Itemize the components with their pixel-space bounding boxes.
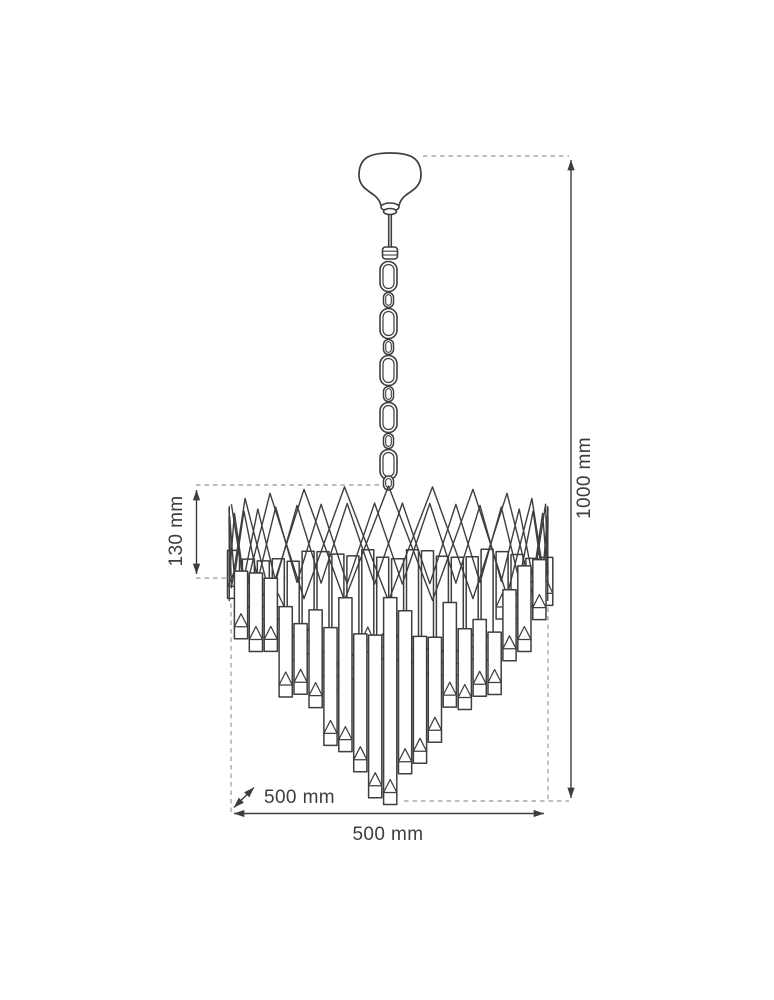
dimension-line-depth	[234, 788, 254, 808]
dimension-label-overall-height: 1000 mm	[574, 437, 595, 519]
product-dimension-diagram: 1000 mm 130 mm 500 mm 500 mm	[0, 0, 774, 1000]
chandelier-diagram-canvas: 1000 mm 130 mm 500 mm 500 mm	[0, 0, 774, 1000]
dimension-label-depth: 500 mm	[264, 787, 335, 808]
dimension-label-shade-height: 130 mm	[166, 495, 187, 566]
dimension-label-width: 500 mm	[352, 824, 423, 845]
chandelier-drawing	[228, 153, 553, 805]
